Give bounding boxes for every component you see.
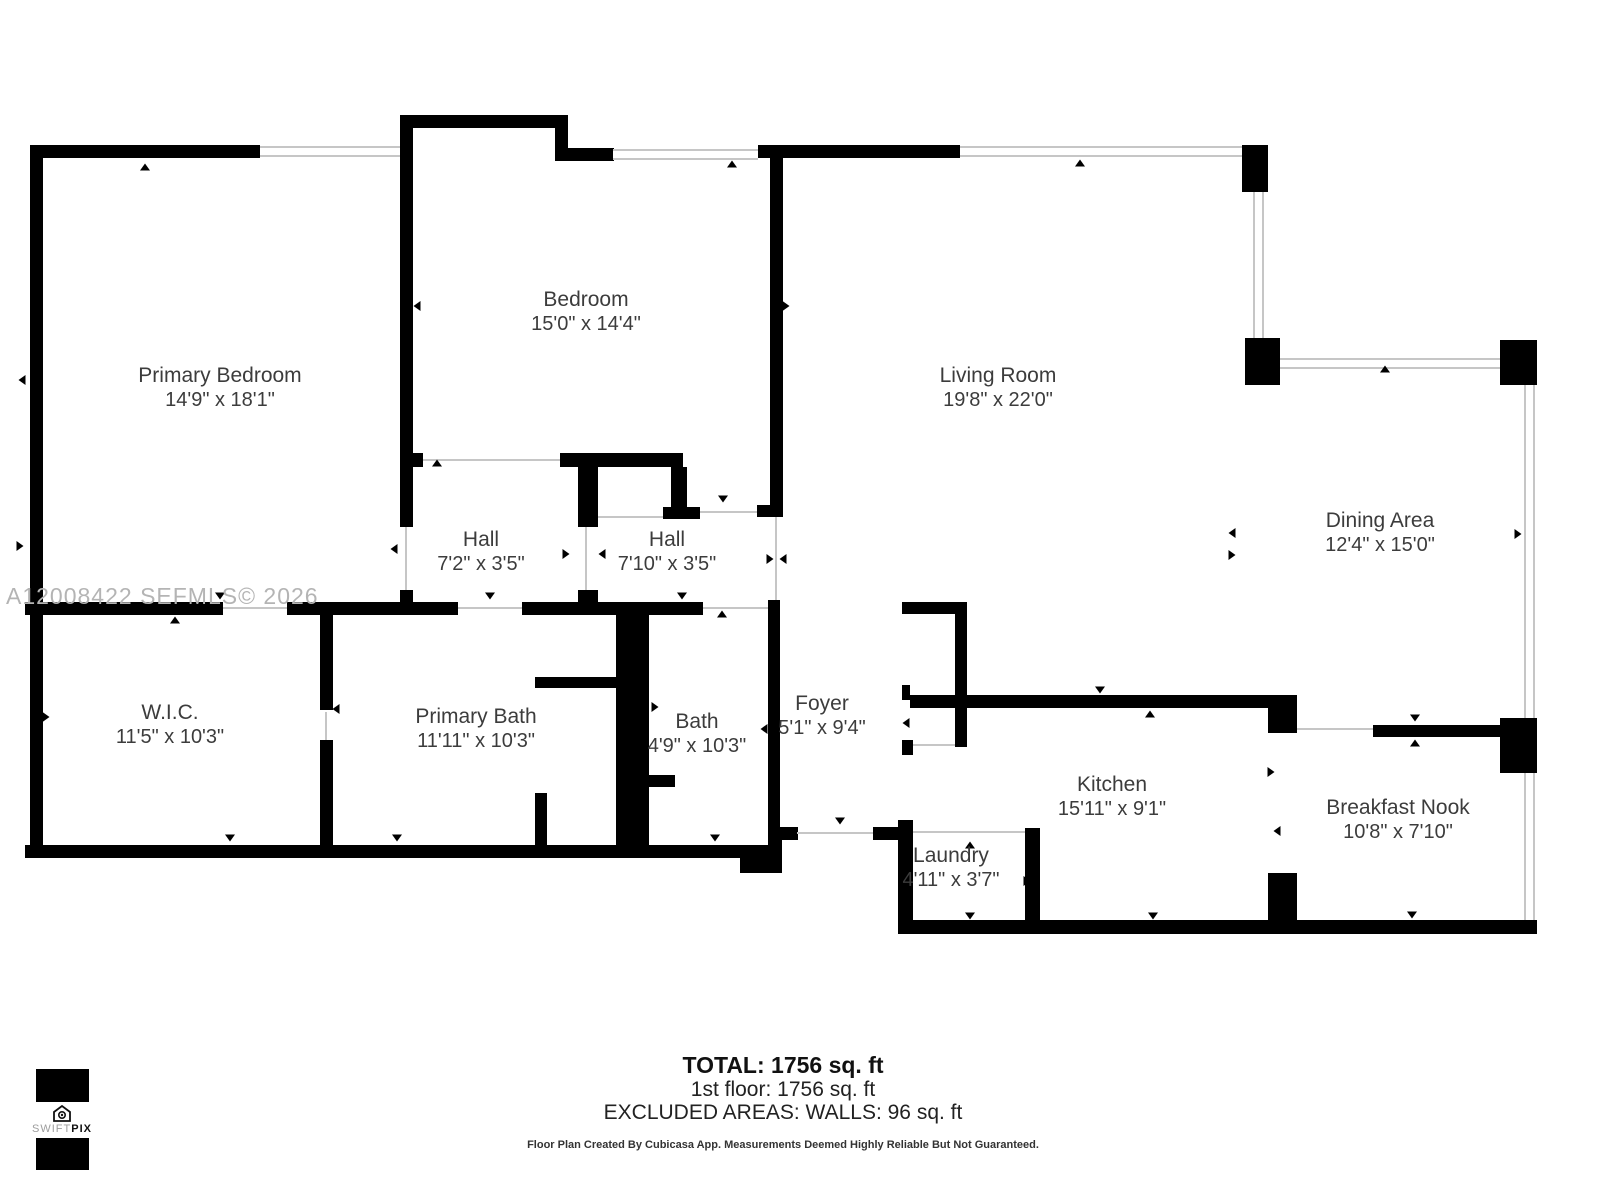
- total-area-text: TOTAL: 1756 sq. ft: [0, 1052, 1566, 1078]
- room-dimensions: 15'11" x 9'1": [1058, 797, 1166, 821]
- room-dimensions: 10'8" x 7'10": [1326, 820, 1470, 844]
- room-label-hall: Hall7'10" x 3'5": [618, 528, 717, 576]
- logo-bottom-block: [36, 1138, 89, 1170]
- logo-brand-text: SWIFTPIX: [32, 1123, 92, 1136]
- room-dimensions: 4'9" x 10'3": [648, 734, 747, 758]
- room-label-living-room: Living Room19'8" x 22'0": [940, 364, 1057, 412]
- room-dimensions: 12'4" x 15'0": [1325, 533, 1435, 557]
- room-label-dining-area: Dining Area12'4" x 15'0": [1325, 509, 1435, 557]
- room-label-primary-bedroom: Primary Bedroom14'9" x 18'1": [138, 364, 301, 412]
- room-name: Primary Bedroom: [138, 364, 301, 388]
- room-label-breakfast-nook: Breakfast Nook10'8" x 7'10": [1326, 796, 1470, 844]
- room-label-laundry: Laundry4'11" x 3'7": [902, 844, 999, 892]
- disclaimer-text: Floor Plan Created By Cubicasa App. Meas…: [0, 1139, 1566, 1151]
- room-dimensions: 19'8" x 22'0": [940, 388, 1057, 412]
- room-name: Kitchen: [1058, 773, 1166, 797]
- room-dimensions: 14'9" x 18'1": [138, 388, 301, 412]
- room-dimensions: 7'2" x 3'5": [437, 552, 524, 576]
- room-name: W.I.C.: [116, 701, 224, 725]
- room-name: Laundry: [902, 844, 999, 868]
- excluded-areas-text: EXCLUDED AREAS: WALLS: 96 sq. ft: [0, 1101, 1566, 1124]
- room-name: Primary Bath: [415, 705, 536, 729]
- first-floor-area-text: 1st floor: 1756 sq. ft: [0, 1078, 1566, 1101]
- logo-top-block: [36, 1069, 89, 1102]
- room-dimensions: 11'11" x 10'3": [415, 729, 536, 753]
- room-label-w-i-c: W.I.C.11'5" x 10'3": [116, 701, 224, 749]
- room-name: Foyer: [778, 692, 865, 716]
- room-name: Breakfast Nook: [1326, 796, 1470, 820]
- room-label-kitchen: Kitchen15'11" x 9'1": [1058, 773, 1166, 821]
- house-camera-icon: [51, 1104, 73, 1122]
- logo-brand-left: SWIFT: [32, 1123, 71, 1135]
- room-label-hall: Hall7'2" x 3'5": [437, 528, 524, 576]
- mls-watermark: A12008422 SEFMLS© 2026: [6, 583, 319, 610]
- swiftpix-logo: SWIFTPIX: [35, 1069, 89, 1170]
- logo-brand-right: PIX: [71, 1123, 92, 1135]
- room-name: Hall: [618, 528, 717, 552]
- room-label-foyer: Foyer5'1" x 9'4": [778, 692, 865, 740]
- room-name: Hall: [437, 528, 524, 552]
- room-dimensions: 15'0" x 14'4": [531, 312, 641, 336]
- room-label-bath: Bath4'9" x 10'3": [648, 710, 747, 758]
- room-label-primary-bath: Primary Bath11'11" x 10'3": [415, 705, 536, 753]
- room-label-bedroom: Bedroom15'0" x 14'4": [531, 288, 641, 336]
- room-name: Living Room: [940, 364, 1057, 388]
- room-dimensions: 7'10" x 3'5": [618, 552, 717, 576]
- room-name: Dining Area: [1325, 509, 1435, 533]
- room-dimensions: 5'1" x 9'4": [778, 716, 865, 740]
- room-name: Bedroom: [531, 288, 641, 312]
- footer-summary: TOTAL: 1756 sq. ft 1st floor: 1756 sq. f…: [0, 1052, 1566, 1151]
- room-dimensions: 11'5" x 10'3": [116, 725, 224, 749]
- room-dimensions: 4'11" x 3'7": [902, 868, 999, 892]
- room-name: Bath: [648, 710, 747, 734]
- floor-plan-page: Primary Bedroom14'9" x 18'1"Bedroom15'0"…: [0, 0, 1600, 1200]
